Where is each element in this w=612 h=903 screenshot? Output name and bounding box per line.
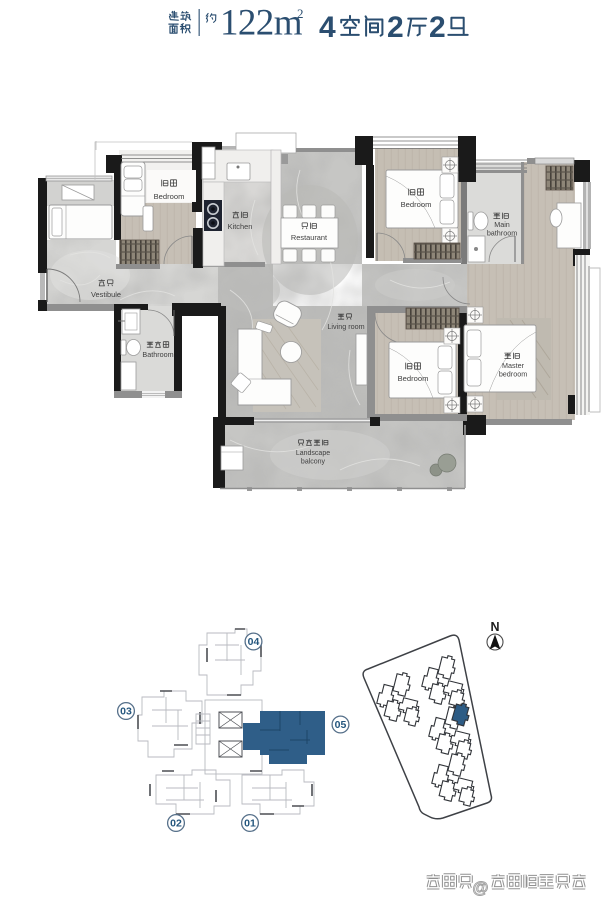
svg-text:05: 05 (335, 719, 347, 731)
svg-text:N: N (490, 620, 499, 634)
svg-text:Bedroom: Bedroom (401, 200, 432, 209)
svg-text:04: 04 (248, 636, 260, 648)
svg-text:Kitchen: Kitchen (228, 222, 253, 231)
svg-text:01: 01 (244, 818, 256, 830)
svg-text:03: 03 (120, 706, 132, 718)
svg-text:balcony: balcony (301, 459, 326, 466)
svg-text:2: 2 (429, 11, 446, 44)
svg-text:Bedroom: Bedroom (154, 192, 185, 201)
svg-text:122m: 122m (220, 3, 303, 44)
svg-text:2: 2 (297, 6, 304, 21)
svg-text:Bathroom: Bathroom (142, 350, 173, 359)
svg-text:Living room: Living room (327, 322, 364, 331)
svg-text:Bedroom: Bedroom (398, 374, 429, 383)
svg-text:Vestibule: Vestibule (91, 290, 121, 299)
svg-text:Landscape: Landscape (296, 450, 330, 457)
svg-text:2: 2 (387, 11, 404, 44)
svg-text:4: 4 (319, 11, 336, 44)
svg-text:@: @ (472, 879, 488, 897)
svg-text:02: 02 (170, 818, 182, 830)
svg-text:bathroom: bathroom (487, 229, 517, 238)
svg-text:bedroom: bedroom (499, 370, 527, 379)
svg-text:Restaurant: Restaurant (291, 233, 327, 242)
